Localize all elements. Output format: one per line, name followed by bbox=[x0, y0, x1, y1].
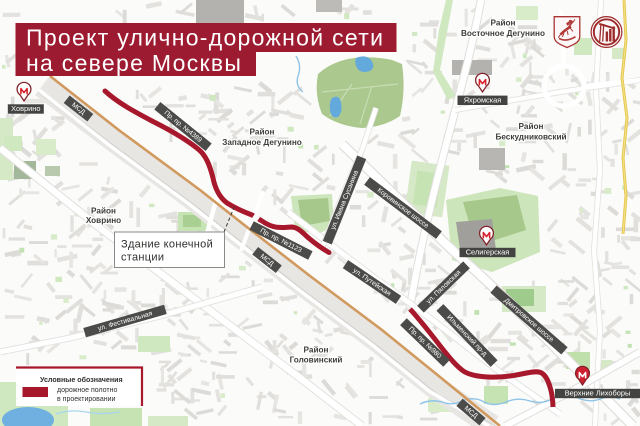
svg-text:Условные обозначения: Условные обозначения bbox=[40, 376, 123, 384]
svg-text:Головинский: Головинский bbox=[290, 356, 343, 365]
svg-text:Селигерская: Селигерская bbox=[466, 248, 510, 257]
svg-text:Бескудниковский: Бескудниковский bbox=[495, 133, 566, 142]
svg-text:Район: Район bbox=[304, 346, 329, 355]
svg-text:Яхромская: Яхромская bbox=[464, 95, 502, 104]
svg-text:Западное Дегунино: Западное Дегунино bbox=[222, 138, 302, 147]
svg-text:Проект улично-дорожной сети: Проект улично-дорожной сети bbox=[26, 24, 384, 50]
svg-text:на севере Москвы: на севере Москвы bbox=[26, 50, 242, 76]
svg-text:станции: станции bbox=[121, 252, 164, 264]
svg-text:Восточное Дегунино: Восточное Дегунино bbox=[461, 29, 545, 38]
svg-text:Верхние Лихоборы: Верхние Лихоборы bbox=[565, 389, 631, 398]
svg-text:Район: Район bbox=[250, 128, 275, 137]
svg-text:в проектировании: в проектировании bbox=[57, 396, 115, 403]
svg-text:Ховрино: Ховрино bbox=[11, 104, 40, 113]
svg-text:Район: Район bbox=[519, 122, 544, 131]
svg-text:дорожное полотно: дорожное полотно bbox=[57, 387, 117, 394]
svg-text:Ховрино: Ховрино bbox=[86, 216, 121, 225]
svg-text:Район: Район bbox=[491, 19, 516, 28]
svg-text:Здание конечной: Здание конечной bbox=[121, 239, 213, 251]
svg-text:Район: Район bbox=[91, 207, 116, 216]
